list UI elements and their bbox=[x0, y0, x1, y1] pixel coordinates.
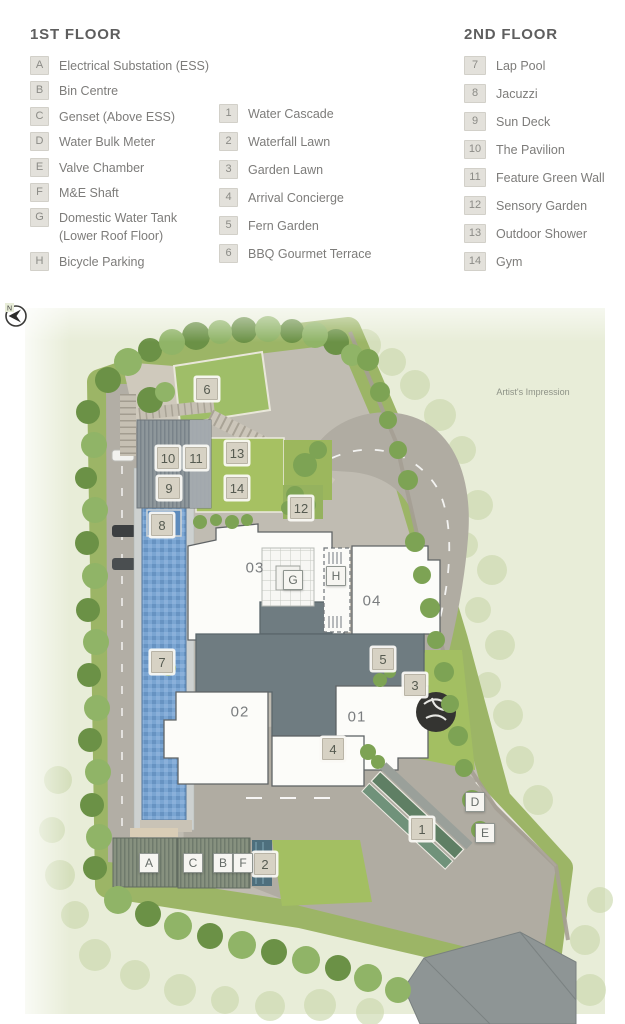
block-03-label: 03 bbox=[246, 560, 265, 577]
legend-key-13: 13 bbox=[464, 224, 486, 243]
plan-marker-b: B bbox=[213, 853, 233, 873]
legend-key-2: 2 bbox=[219, 132, 238, 151]
legend-key-4: 4 bbox=[219, 188, 238, 207]
legend-label-d: Water Bulk Meter bbox=[59, 132, 155, 151]
legend-label-1: Water Cascade bbox=[248, 104, 334, 123]
plan-marker-a: A bbox=[139, 853, 159, 873]
parked-car-dark-2 bbox=[112, 558, 136, 570]
legend-row-d: D Water Bulk Meter bbox=[30, 132, 215, 151]
plan-marker-4: 4 bbox=[322, 738, 344, 760]
legend-row-a: A Electrical Substation (ESS) bbox=[30, 56, 215, 75]
plan-marker-10: 10 bbox=[157, 447, 179, 469]
plan-marker-5: 5 bbox=[372, 648, 394, 670]
legend-key-12: 12 bbox=[464, 196, 486, 215]
site-plan: N Artist's Impression 03 04 02 01 6 10 1… bbox=[0, 300, 625, 1024]
plan-marker-2: 2 bbox=[254, 853, 276, 875]
legend-row-e: E Valve Chamber bbox=[30, 158, 215, 177]
legend-row-2: 2 Waterfall Lawn bbox=[219, 132, 389, 151]
block-01-label: 01 bbox=[348, 709, 367, 726]
legend-row-4: 4 Arrival Concierge bbox=[219, 188, 389, 207]
legend-row-12: 12 Sensory Garden bbox=[464, 196, 624, 215]
legend-row-10: 10 The Pavilion bbox=[464, 140, 624, 159]
legend-label-5: Fern Garden bbox=[248, 216, 319, 235]
north-compass-icon: N bbox=[0, 300, 30, 330]
legend-row-b: B Bin Centre bbox=[30, 81, 215, 100]
legend-label-2: Waterfall Lawn bbox=[248, 132, 330, 151]
legend-row-11: 11 Feature Green Wall bbox=[464, 168, 624, 187]
plan-marker-e: E bbox=[475, 823, 495, 843]
legend-key-b: B bbox=[30, 81, 49, 100]
legend-row-8: 8 Jacuzzi bbox=[464, 84, 624, 103]
plan-marker-6: 6 bbox=[196, 378, 218, 400]
legend-key-d: D bbox=[30, 132, 49, 151]
legend-label-c: Genset (Above ESS) bbox=[59, 107, 175, 126]
legend-label-b: Bin Centre bbox=[59, 81, 118, 100]
plan-marker-c: C bbox=[183, 853, 203, 873]
legend-row-f: F M&E Shaft bbox=[30, 183, 215, 202]
legend-row-5: 5 Fern Garden bbox=[219, 216, 389, 235]
block-02-shape bbox=[164, 692, 268, 784]
legend-title-second-floor: 2ND FLOOR bbox=[464, 26, 624, 43]
legend-label-10: The Pavilion bbox=[496, 140, 565, 159]
legend-key-1: 1 bbox=[219, 104, 238, 123]
legend-label-h: Bicycle Parking bbox=[59, 252, 144, 271]
buildings bbox=[164, 524, 440, 786]
legend-key-e: E bbox=[30, 158, 49, 177]
block-02-label: 02 bbox=[231, 704, 250, 721]
legend-key-10: 10 bbox=[464, 140, 486, 159]
legend-label-4: Arrival Concierge bbox=[248, 188, 344, 207]
legend-key-8: 8 bbox=[464, 84, 486, 103]
legend-row-13: 13 Outdoor Shower bbox=[464, 224, 624, 243]
legend-label-a: Electrical Substation (ESS) bbox=[59, 56, 209, 75]
legend-key-14: 14 bbox=[464, 252, 486, 271]
legend-label-13: Outdoor Shower bbox=[496, 224, 587, 243]
plan-marker-9: 9 bbox=[158, 477, 180, 499]
legend-row-c: C Genset (Above ESS) bbox=[30, 107, 215, 126]
plan-marker-14: 14 bbox=[226, 477, 248, 499]
plan-marker-h: H bbox=[326, 566, 346, 586]
plan-marker-3: 3 bbox=[404, 674, 426, 696]
legend-label-14: Gym bbox=[496, 252, 522, 271]
legend-key-9: 9 bbox=[464, 112, 486, 131]
legend-key-3: 3 bbox=[219, 160, 238, 179]
plan-marker-1: 1 bbox=[411, 818, 433, 840]
plan-marker-11: 11 bbox=[185, 447, 207, 469]
legend-row-1: 1 Water Cascade bbox=[219, 104, 389, 123]
legend-key-5: 5 bbox=[219, 216, 238, 235]
legend-label-12: Sensory Garden bbox=[496, 196, 587, 215]
legend-row-g: G Domestic Water Tank (Lower Roof Floor) bbox=[30, 208, 215, 245]
legend-row-3: 3 Garden Lawn bbox=[219, 160, 389, 179]
svg-text:N: N bbox=[7, 306, 12, 313]
parked-car-dark-1 bbox=[112, 525, 136, 537]
legend-label-f: M&E Shaft bbox=[59, 183, 119, 202]
site-plan-illustration bbox=[0, 300, 625, 1024]
legend-key-f: F bbox=[30, 183, 49, 202]
legend-key-11: 11 bbox=[464, 168, 486, 187]
legend-first-floor: 1ST FLOOR A Electrical Substation (ESS) … bbox=[30, 26, 215, 277]
legend-row-7: 7 Lap Pool bbox=[464, 56, 624, 75]
arrival-lobby-shape bbox=[272, 736, 364, 786]
legend-row-14: 14 Gym bbox=[464, 252, 624, 271]
legend-title-first-floor: 1ST FLOOR bbox=[30, 26, 215, 43]
legend-label-8: Jacuzzi bbox=[496, 84, 538, 103]
legend-key-6: 6 bbox=[219, 244, 238, 263]
legend-key-c: C bbox=[30, 107, 49, 126]
legend-label-7: Lap Pool bbox=[496, 56, 545, 75]
plan-marker-d: D bbox=[465, 792, 485, 812]
block-04-label: 04 bbox=[363, 593, 382, 610]
legend-label-e: Valve Chamber bbox=[59, 158, 144, 177]
legend-key-g: G bbox=[30, 208, 49, 227]
legend-row-9: 9 Sun Deck bbox=[464, 112, 624, 131]
plan-marker-7: 7 bbox=[151, 651, 173, 673]
artists-impression-note: Artist's Impression bbox=[496, 387, 569, 397]
left-driveway bbox=[106, 384, 138, 865]
legend-label-g: Domestic Water Tank (Lower Roof Floor) bbox=[59, 208, 177, 245]
legend-label-3: Garden Lawn bbox=[248, 160, 323, 179]
legend-key-h: H bbox=[30, 252, 49, 271]
plan-marker-12: 12 bbox=[290, 497, 312, 519]
plan-marker-g: G bbox=[283, 570, 303, 590]
legend-key-7: 7 bbox=[464, 56, 486, 75]
legend-key-a: A bbox=[30, 56, 49, 75]
legend-row-h: H Bicycle Parking bbox=[30, 252, 215, 271]
plan-marker-13: 13 bbox=[226, 442, 248, 464]
legend-label-6: BBQ Gourmet Terrace bbox=[248, 244, 371, 263]
plan-marker-8: 8 bbox=[151, 514, 173, 536]
legend-second-floor: 2ND FLOOR 7 Lap Pool 8 Jacuzzi 9 Sun Dec… bbox=[464, 26, 624, 280]
plan-marker-f: F bbox=[233, 853, 253, 873]
legend-row-6: 6 BBQ Gourmet Terrace bbox=[219, 244, 389, 263]
legend-amenities: 1 Water Cascade 2 Waterfall Lawn 3 Garde… bbox=[219, 104, 389, 272]
legend-label-11: Feature Green Wall bbox=[496, 168, 605, 187]
legend-label-9: Sun Deck bbox=[496, 112, 550, 131]
site-plan-page: { "legend": { "first_floor": { "title": … bbox=[0, 0, 625, 1024]
